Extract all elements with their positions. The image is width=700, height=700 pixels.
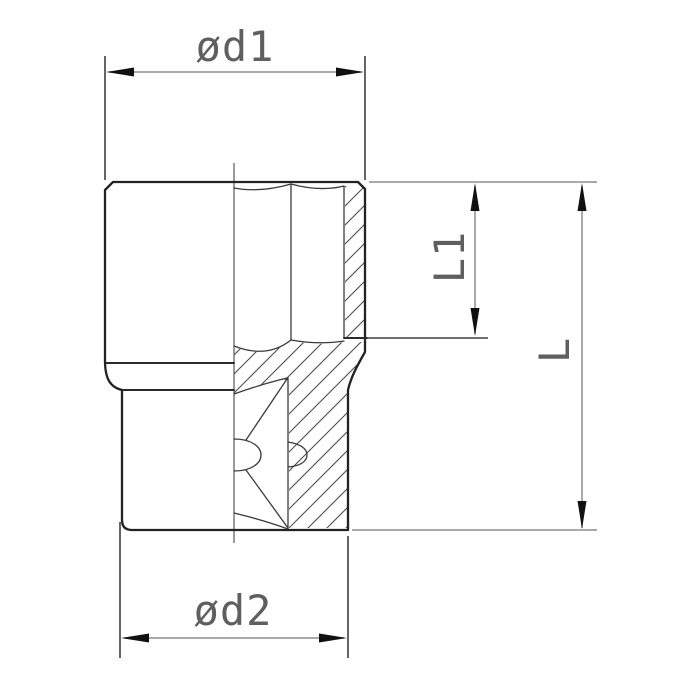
hatch-upper-wall: [345, 186, 364, 337]
socket-half-section-drawing: ød1 ød2 L1 L: [0, 0, 700, 700]
dimension-d1-label: ød1: [196, 22, 275, 71]
dimension-l1-label: L1: [425, 231, 474, 284]
dimension-d2-label: ød2: [194, 586, 273, 635]
dimension-l-label: L: [530, 337, 579, 363]
